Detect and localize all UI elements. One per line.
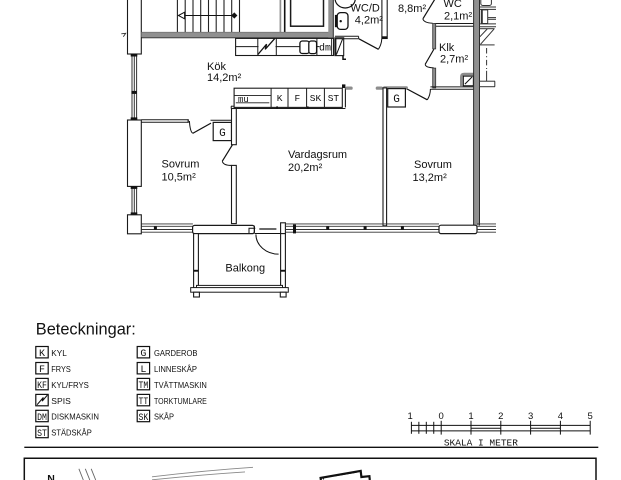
svg-text:Sovrum: Sovrum xyxy=(162,158,200,170)
svg-text:mu: mu xyxy=(238,95,249,105)
svg-text:K: K xyxy=(39,349,45,360)
svg-text:0: 0 xyxy=(439,411,444,422)
svg-text:10,5m²: 10,5m² xyxy=(162,171,197,183)
svg-text:N: N xyxy=(47,473,55,480)
svg-text:TVÄTTMASKIN: TVÄTTMASKIN xyxy=(154,380,207,390)
svg-text:F: F xyxy=(39,365,45,376)
svg-text:LINNESKÅP: LINNESKÅP xyxy=(154,364,197,374)
svg-text:KYL/FRYS: KYL/FRYS xyxy=(51,380,89,390)
svg-text:DM: DM xyxy=(37,413,47,424)
svg-text:1: 1 xyxy=(468,411,473,422)
svg-text:Beteckningar:: Beteckningar: xyxy=(36,320,136,338)
svg-text:DISKMASKIN: DISKMASKIN xyxy=(51,412,99,422)
svg-text:FRYS: FRYS xyxy=(51,364,71,374)
svg-text:STÄDSKÅP: STÄDSKÅP xyxy=(51,428,92,438)
svg-text:G: G xyxy=(219,128,226,140)
svg-text:1: 1 xyxy=(408,411,413,422)
svg-text:14,2m²: 14,2m² xyxy=(207,72,242,84)
svg-text:Vardagsrum: Vardagsrum xyxy=(288,149,347,161)
svg-text:20,2m²: 20,2m² xyxy=(288,162,323,174)
svg-text:2,7m²: 2,7m² xyxy=(440,54,468,66)
svg-text:F: F xyxy=(294,93,300,104)
svg-text:Balkong: Balkong xyxy=(225,262,265,274)
svg-text:4,2m²: 4,2m² xyxy=(355,14,383,26)
svg-text:WC: WC xyxy=(444,0,462,10)
svg-text:ST: ST xyxy=(328,93,340,104)
svg-text:TORKTUMLARE: TORKTUMLARE xyxy=(154,396,207,406)
svg-text:TT: TT xyxy=(139,397,149,408)
svg-text:4: 4 xyxy=(558,411,563,422)
svg-text:SPIS: SPIS xyxy=(51,396,71,406)
svg-text:ST: ST xyxy=(37,429,47,440)
svg-text:2,1m²: 2,1m² xyxy=(444,11,472,23)
svg-text:G: G xyxy=(393,94,400,106)
svg-text:SK: SK xyxy=(310,93,322,104)
svg-text:2: 2 xyxy=(498,411,503,422)
svg-text:SK: SK xyxy=(139,413,149,424)
svg-text:KYL: KYL xyxy=(51,348,67,358)
svg-text:L: L xyxy=(140,365,146,376)
svg-text:Sovrum: Sovrum xyxy=(414,159,452,171)
svg-text:8,8m²: 8,8m² xyxy=(398,3,426,15)
svg-text:TM: TM xyxy=(139,381,149,392)
svg-text:K: K xyxy=(277,93,283,104)
svg-text:Klk: Klk xyxy=(439,42,455,54)
svg-text:5: 5 xyxy=(588,411,593,422)
svg-text:SKÅP: SKÅP xyxy=(154,412,174,422)
svg-text:G: G xyxy=(140,349,146,360)
svg-text:13,2m²: 13,2m² xyxy=(413,172,448,184)
svg-text:3: 3 xyxy=(528,411,533,422)
svg-text:dm: dm xyxy=(319,43,331,55)
svg-text:WC/D: WC/D xyxy=(351,2,380,14)
svg-text:GARDEROB: GARDEROB xyxy=(154,348,198,358)
svg-text:KF: KF xyxy=(37,381,47,392)
